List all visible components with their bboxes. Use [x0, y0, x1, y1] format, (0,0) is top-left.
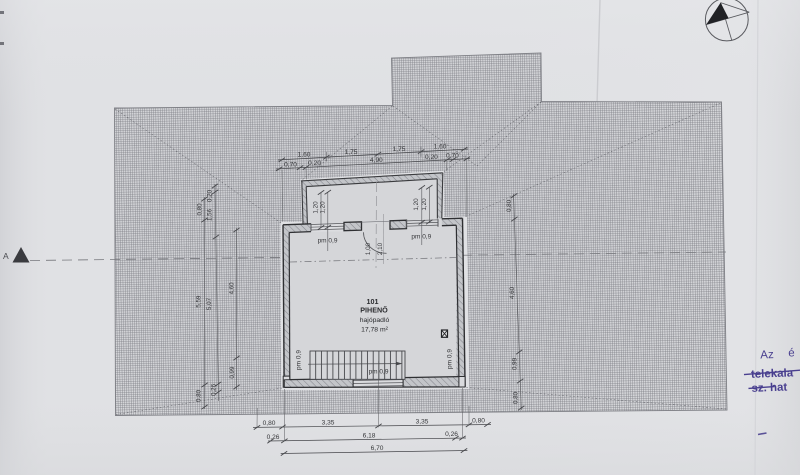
- svg-text:4,60: 4,60: [509, 286, 516, 299]
- svg-text:1,20: 1,20: [320, 201, 327, 214]
- svg-text:1,60: 1,60: [298, 152, 311, 159]
- svg-text:1,20: 1,20: [413, 198, 420, 211]
- svg-text:0,80: 0,80: [472, 418, 485, 425]
- svg-text:0,99: 0,99: [512, 357, 519, 370]
- svg-text:6,70: 6,70: [371, 445, 384, 452]
- svg-text:0,26: 0,26: [445, 431, 458, 438]
- svg-text:5,07: 5,07: [206, 297, 213, 310]
- svg-text:1,60: 1,60: [434, 144, 447, 151]
- svg-text:2,10: 2,10: [377, 242, 384, 255]
- svg-text:é: é: [788, 347, 795, 359]
- svg-text:Az: Az: [760, 349, 774, 361]
- svg-text:3,35: 3,35: [416, 418, 429, 425]
- svg-text:0,70: 0,70: [284, 161, 297, 168]
- svg-text:5,59: 5,59: [196, 295, 203, 308]
- svg-text:1,75: 1,75: [345, 149, 358, 156]
- svg-text:4,60: 4,60: [229, 282, 236, 295]
- svg-text:0,80: 0,80: [196, 389, 203, 402]
- svg-text:6,18: 6,18: [363, 433, 376, 440]
- svg-text:0,80: 0,80: [513, 391, 520, 404]
- svg-text:3,35: 3,35: [322, 420, 335, 427]
- svg-text:hajópadló: hajópadló: [360, 317, 390, 324]
- svg-text:pm 0,9: pm 0,9: [318, 237, 338, 244]
- svg-text:0,99: 0,99: [229, 366, 236, 379]
- svg-text:0,20: 0,20: [425, 154, 438, 161]
- svg-text:pm 0,9: pm 0,9: [447, 349, 454, 369]
- svg-text:0,20: 0,20: [207, 189, 214, 202]
- svg-text:1,20: 1,20: [313, 201, 320, 214]
- svg-text:0,80: 0,80: [263, 420, 276, 427]
- svg-text:4,90: 4,90: [370, 157, 383, 164]
- svg-text:A: A: [3, 251, 9, 261]
- svg-text:pm 0,9: pm 0,9: [296, 350, 303, 370]
- svg-text:0,20: 0,20: [308, 160, 321, 167]
- svg-text:1,56: 1,56: [207, 208, 214, 221]
- svg-text:1,20: 1,20: [421, 198, 428, 211]
- svg-text:1,75: 1,75: [393, 146, 406, 153]
- svg-text:1,00: 1,00: [365, 242, 372, 255]
- svg-text:0,80: 0,80: [197, 203, 204, 216]
- svg-text:0,80: 0,80: [506, 199, 513, 212]
- svg-text:0,26: 0,26: [211, 383, 218, 396]
- svg-text:0,70: 0,70: [446, 153, 459, 160]
- svg-text:17,78 m²: 17,78 m²: [361, 327, 389, 334]
- svg-text:0,26: 0,26: [267, 434, 280, 441]
- svg-text:PIHENŐ: PIHENŐ: [360, 306, 388, 315]
- svg-text:pm 0,9: pm 0,9: [411, 233, 431, 240]
